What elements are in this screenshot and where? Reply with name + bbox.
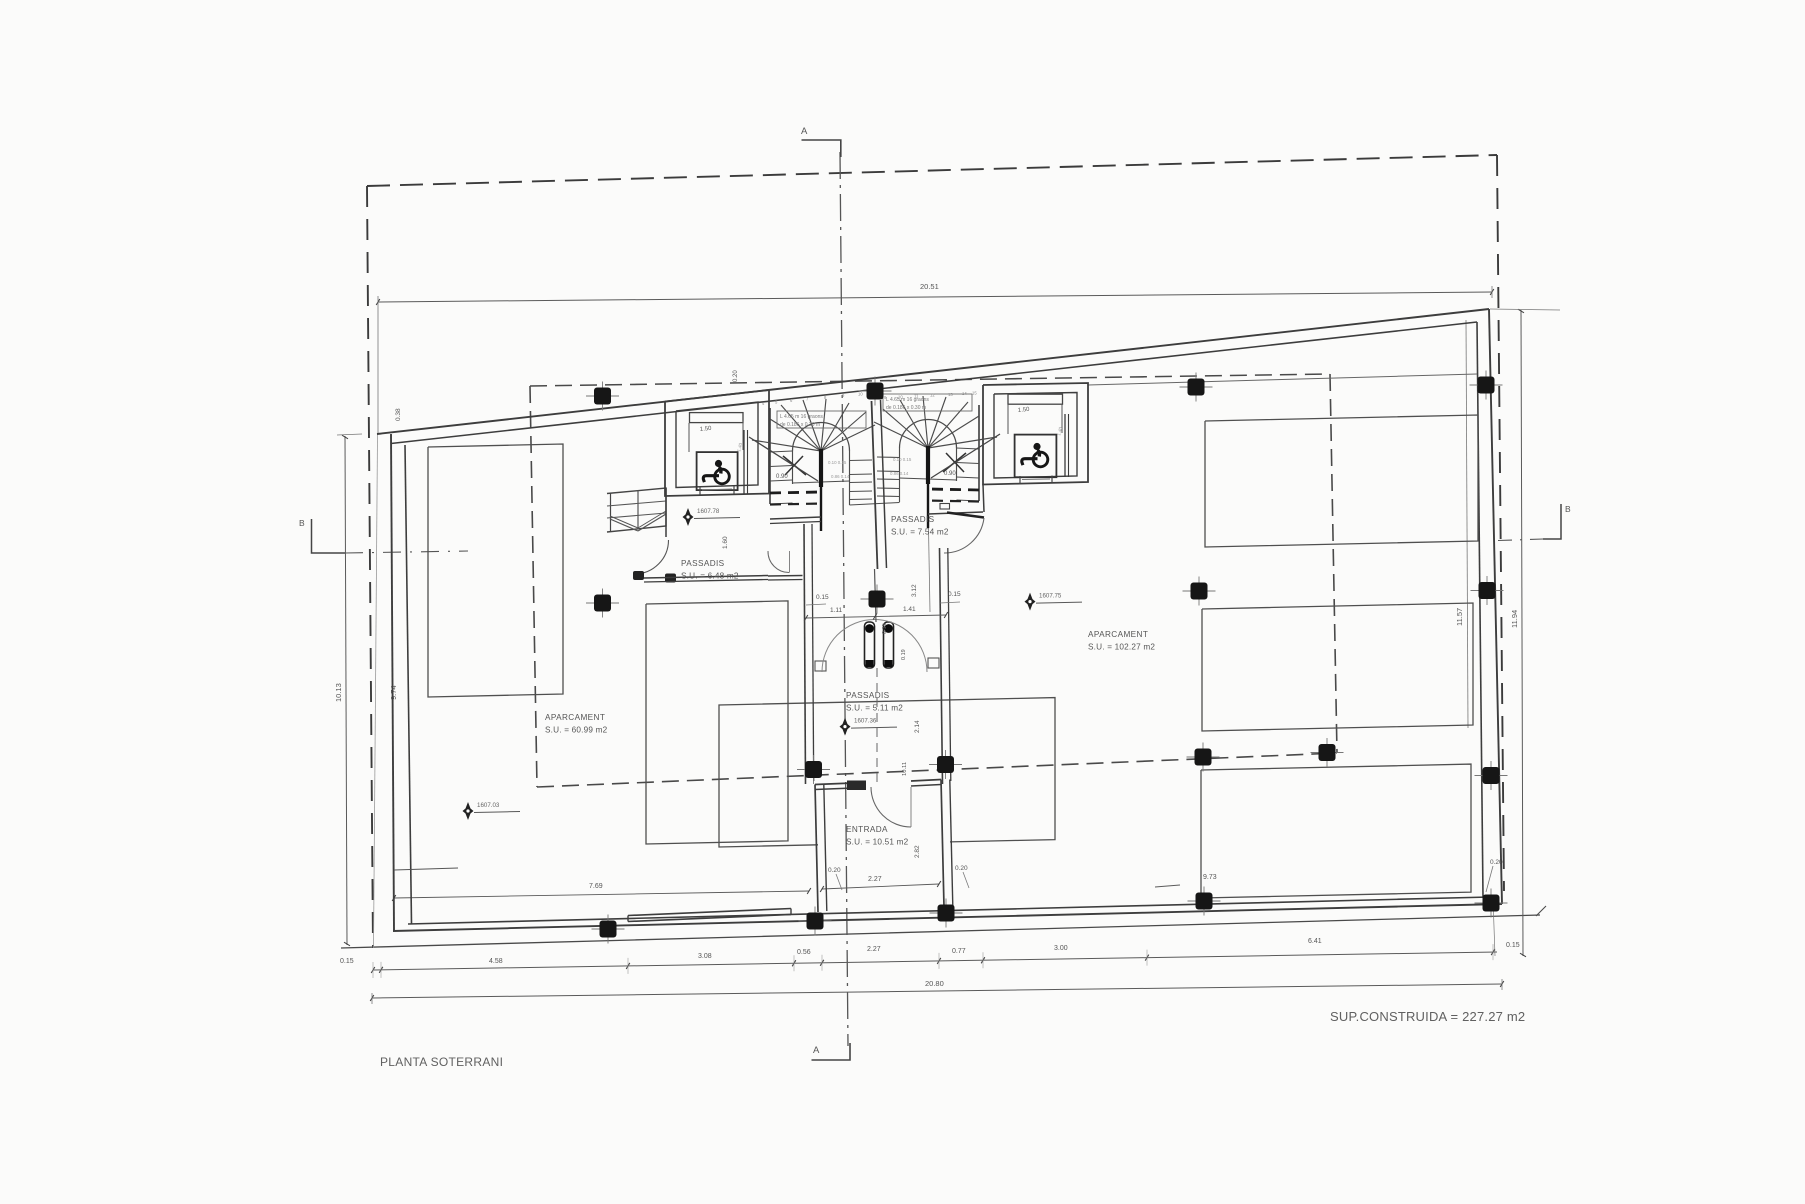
svg-text:20.80: 20.80 [925, 979, 944, 988]
svg-text:1.41: 1.41 [903, 606, 916, 613]
svg-text:7.69: 7.69 [589, 883, 603, 890]
svg-text:0.19: 0.19 [901, 649, 907, 660]
svg-text:1607.78: 1607.78 [697, 508, 720, 515]
svg-text:0.86 0.14: 0.86 0.14 [890, 471, 909, 476]
svg-text:14: 14 [962, 391, 967, 396]
svg-text:4.58: 4.58 [489, 958, 503, 965]
svg-text:0.38: 0.38 [395, 408, 402, 421]
svg-text:PASSADIS: PASSADIS [891, 515, 935, 524]
svg-text:0.10 0.15: 0.10 0.15 [893, 457, 912, 462]
svg-text:0.15: 0.15 [816, 594, 829, 601]
svg-text:0.15: 0.15 [882, 623, 888, 634]
svg-text:1.11: 1.11 [830, 607, 843, 614]
svg-text:0.20: 0.20 [733, 370, 739, 382]
svg-text:S.U. = 10.51 m2: S.U. = 10.51 m2 [846, 838, 909, 847]
svg-text:S.U. = 7.54 m2: S.U. = 7.54 m2 [891, 528, 949, 537]
svg-text:SUP.CONSTRUIDA = 227.27 m2: SUP.CONSTRUIDA = 227.27 m2 [1330, 1009, 1525, 1024]
svg-text:10.13: 10.13 [334, 683, 343, 702]
svg-text:L 4.65 m 16 graons: L 4.65 m 16 graons [886, 397, 929, 403]
svg-text:PASSADIS: PASSADIS [681, 559, 725, 568]
svg-text:0.10 0.15: 0.10 0.15 [828, 460, 847, 465]
svg-text:1.50: 1.50 [700, 426, 713, 433]
svg-text:S.U. = 60.99 m2: S.U. = 60.99 m2 [545, 726, 608, 735]
svg-text:0.20: 0.20 [955, 865, 968, 872]
svg-text:15: 15 [972, 391, 977, 396]
svg-text:0.90: 0.90 [776, 474, 788, 480]
svg-text:13: 13 [948, 392, 953, 397]
svg-text:PLANTA SOTERRANI: PLANTA SOTERRANI [380, 1055, 503, 1069]
svg-text:A: A [801, 126, 808, 137]
svg-text:20.51: 20.51 [920, 282, 939, 291]
svg-text:1607.75: 1607.75 [1039, 593, 1062, 600]
svg-text:10.11: 10.11 [902, 762, 908, 776]
svg-text:0.15: 0.15 [948, 591, 961, 598]
svg-text:B: B [1565, 504, 1571, 514]
svg-text:0.20: 0.20 [828, 867, 841, 874]
svg-text:APARCAMENT: APARCAMENT [1088, 630, 1148, 639]
svg-text:11.94: 11.94 [1510, 610, 1519, 628]
svg-text:6.41: 6.41 [1308, 938, 1322, 945]
svg-text:11: 11 [914, 394, 919, 399]
svg-text:0.86 0.14: 0.86 0.14 [831, 474, 850, 479]
svg-text:12: 12 [930, 393, 935, 398]
svg-text:10: 10 [858, 391, 863, 396]
svg-text:0.90: 0.90 [944, 471, 956, 477]
svg-text:1.50: 1.50 [1018, 407, 1031, 414]
svg-text:2.27: 2.27 [868, 876, 882, 883]
svg-text:de 0.186 x 0.30 m: de 0.186 x 0.30 m [780, 422, 820, 428]
svg-text:1.60: 1.60 [722, 536, 729, 549]
svg-text:11.57: 11.57 [1455, 608, 1464, 626]
svg-text:2.14: 2.14 [914, 720, 921, 733]
svg-text:APARCAMENT: APARCAMENT [545, 713, 605, 722]
svg-text:0.77: 0.77 [952, 948, 966, 955]
svg-text:2.27: 2.27 [867, 946, 881, 953]
svg-text:A: A [813, 1045, 820, 1056]
svg-text:S.U. = 6.48 m2: S.U. = 6.48 m2 [681, 572, 739, 581]
svg-text:9.73: 9.73 [1203, 874, 1217, 881]
svg-text:10: 10 [898, 394, 903, 399]
svg-text:PASSADIS: PASSADIS [846, 691, 890, 700]
svg-text:B: B [299, 518, 305, 528]
svg-text:1607.03: 1607.03 [477, 802, 500, 809]
svg-text:L 4.65 m 16 graons: L 4.65 m 16 graons [780, 414, 823, 420]
svg-text:S.U. = 102.27 m2: S.U. = 102.27 m2 [1088, 643, 1155, 652]
svg-text:3.12: 3.12 [911, 584, 918, 597]
svg-text:3.08: 3.08 [698, 953, 712, 960]
svg-text:de 0.186 x 0.30 m: de 0.186 x 0.30 m [886, 405, 926, 411]
svg-text:3.00: 3.00 [1054, 945, 1068, 952]
svg-text:2.82: 2.82 [914, 845, 921, 858]
svg-text:1607.36: 1607.36 [854, 718, 877, 725]
svg-text:0.15: 0.15 [340, 958, 354, 965]
svg-text:0.56: 0.56 [797, 949, 811, 956]
svg-text:ENTRADA: ENTRADA [846, 825, 888, 834]
svg-text:0.15: 0.15 [1506, 942, 1520, 949]
svg-text:S.U. = 5.11 m2: S.U. = 5.11 m2 [846, 704, 903, 713]
